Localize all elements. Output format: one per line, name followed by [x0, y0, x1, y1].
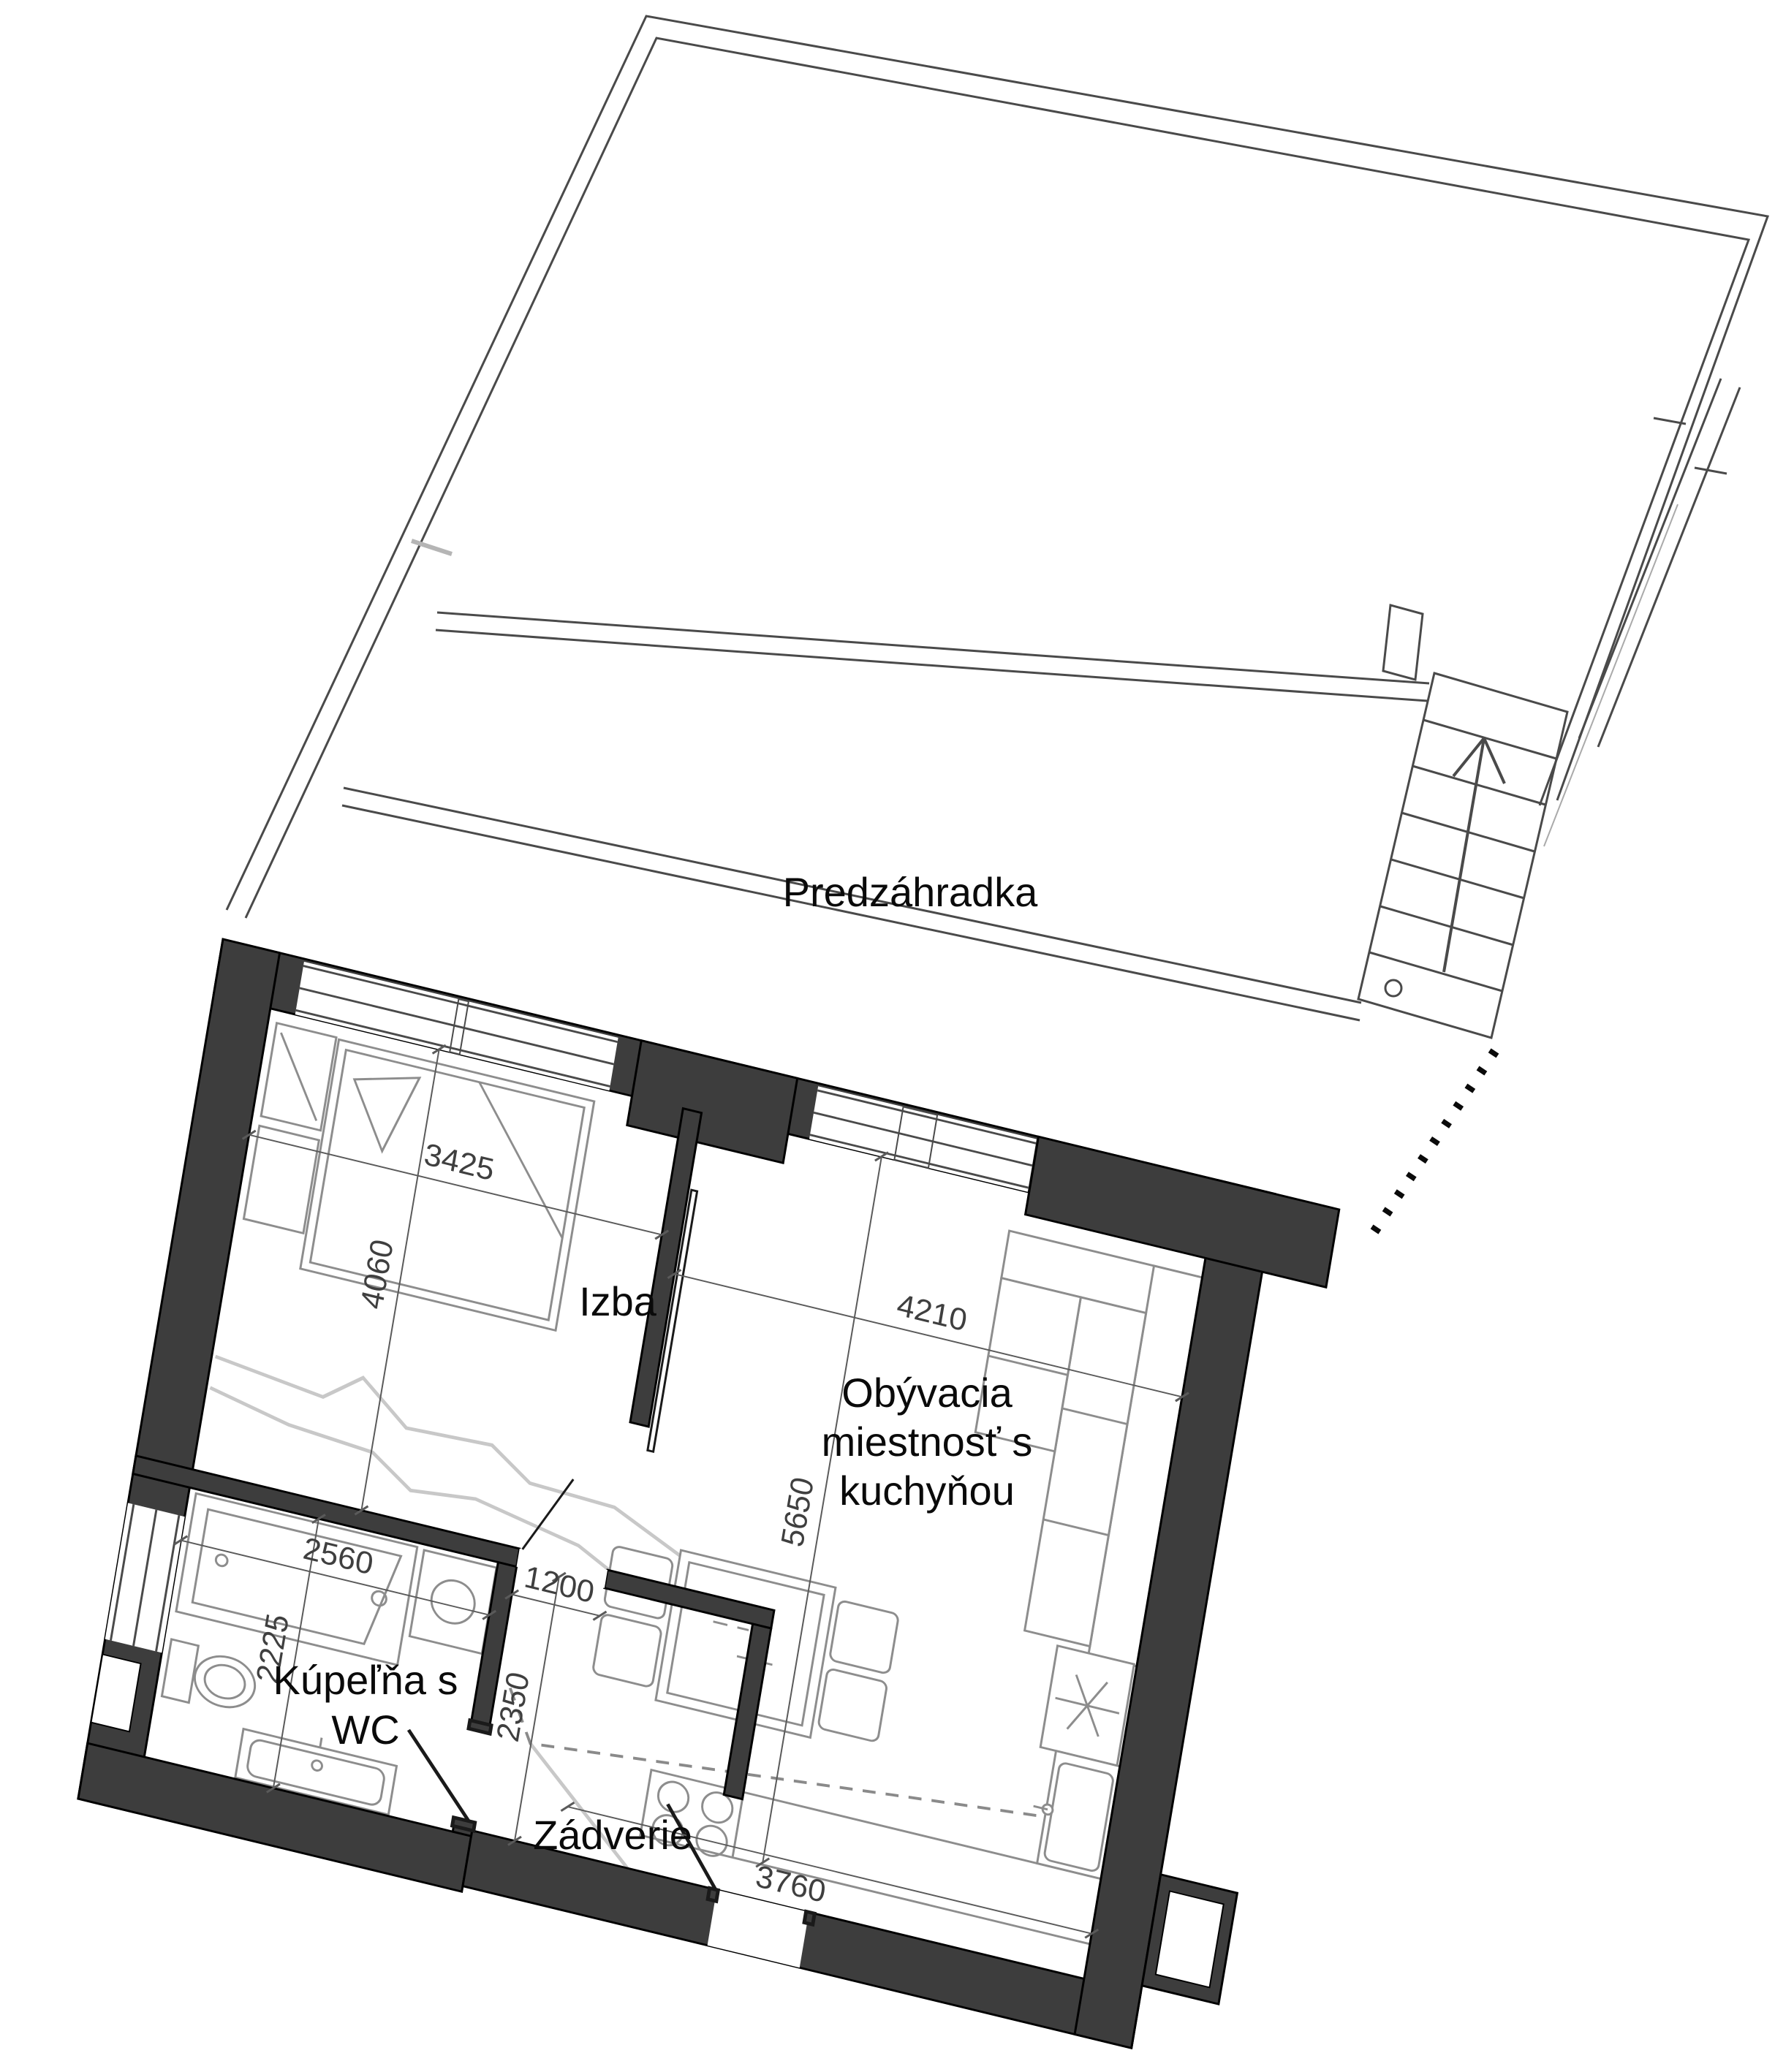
garden-faint-line	[1544, 504, 1678, 846]
stair-tread	[1369, 952, 1502, 991]
garden-divider-upper-2	[436, 630, 1428, 701]
chair	[818, 1668, 887, 1742]
stair-tread	[1380, 906, 1513, 945]
washing-machine	[409, 1550, 496, 1654]
chair	[592, 1614, 662, 1688]
living-label: Obývacia miestnosť s kuchyňou	[822, 1370, 1033, 1514]
hall-label: Zádverie	[533, 1812, 692, 1858]
floorplan-page: 3425 4060 4210 5650 2560 2225 1200 2350 …	[0, 0, 1775, 2072]
bathroom-label-line2: WC	[331, 1707, 399, 1753]
garden-divider-upper-1	[437, 612, 1429, 683]
living-label-line2: miestnosť s	[822, 1419, 1033, 1465]
bathroom-label-line1: Kúpeľňa s	[273, 1657, 458, 1703]
living-label-line1: Obývacia	[841, 1370, 1013, 1416]
stair-base-marker-icon	[1385, 980, 1401, 996]
stairs-up-arrow-icon	[1444, 738, 1505, 972]
fridge	[1040, 1646, 1134, 1766]
garden-inner-boundary	[246, 38, 1749, 918]
boundary-tick-2	[1695, 468, 1727, 474]
entrance-door-post	[804, 1911, 814, 1924]
dotted-path	[1367, 1051, 1495, 1242]
chair	[829, 1600, 898, 1674]
stair-ramp-line-1	[1579, 379, 1721, 738]
izba-label: Izba	[579, 1278, 657, 1324]
floorplan-drawing: 3425 4060 4210 5650 2560 2225 1200 2350 …	[0, 0, 1775, 2072]
living-label-line3: kuchyňou	[839, 1468, 1015, 1514]
stair-railing-bar	[1383, 605, 1423, 680]
entrance-door-post	[708, 1888, 718, 1901]
garden-stairs	[1358, 605, 1567, 1038]
garden-label: Predzáhradka	[783, 869, 1039, 915]
apartment-plan: 3425 4060 4210 5650 2560 2225 1200 2350 …	[78, 939, 1352, 2072]
stair-ramp-line-2	[1598, 387, 1740, 747]
